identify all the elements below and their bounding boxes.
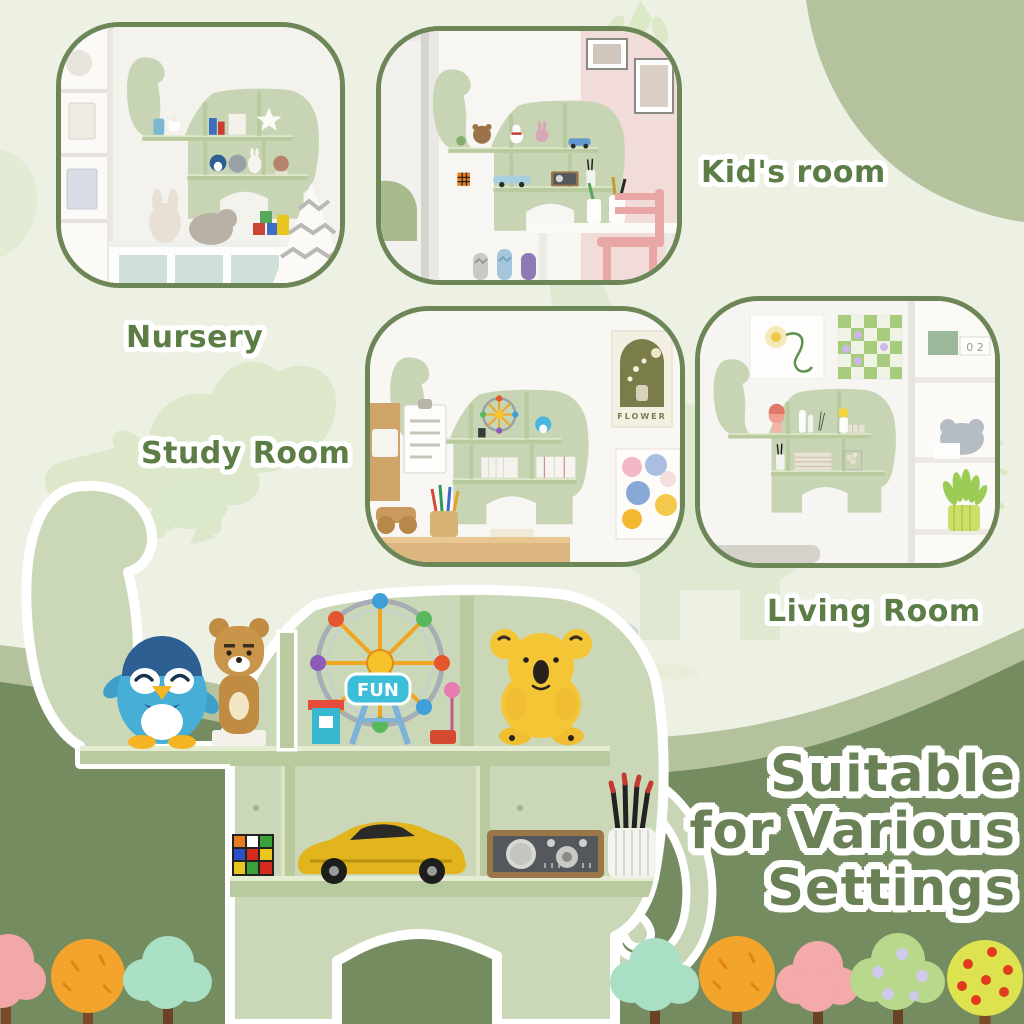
photo-card-kids-room [376, 26, 682, 285]
radio [487, 830, 604, 878]
rolled-mats [473, 249, 536, 280]
nursery-scene [61, 27, 340, 283]
rubiks-cube-toy [232, 834, 274, 876]
checkered-print [838, 315, 902, 379]
headline-line-2: for Various [636, 803, 1016, 860]
clipboard [404, 399, 446, 473]
tree-green-dotted [850, 933, 945, 1024]
headline-line-3: Settings [636, 860, 1016, 917]
wall-shelf-unit [61, 27, 113, 283]
kids-room-scene [381, 31, 677, 280]
toy-block [253, 223, 265, 235]
tree-mint-2 [610, 938, 699, 1024]
shelving-unit: 0 2 [908, 301, 995, 563]
label-study-room: Study Room [141, 436, 350, 471]
label-living-room: Living Room [767, 594, 981, 629]
label-nursery: Nursery [126, 320, 263, 355]
poster-title-text: FLOWER [617, 412, 667, 421]
tree-mint [123, 936, 212, 1024]
photo-card-living-room: 0 2 [695, 296, 1000, 568]
watermark-blob-topleft [0, 148, 37, 261]
trees-row [0, 928, 1024, 1024]
tree-pink-2 [776, 941, 859, 1024]
living-room-scene: 0 2 [700, 301, 995, 563]
headline-line-1: Suitable [636, 746, 1016, 803]
door-frame [381, 31, 439, 280]
headline: Suitable for Various Settings [636, 746, 1016, 917]
daisy-print [750, 315, 824, 379]
green-box [928, 331, 958, 355]
label-kids-room: Kid's room [701, 155, 886, 190]
page-root: FLOWER [0, 0, 1024, 1024]
photo-card-nursery [56, 22, 345, 288]
tree-red-dotted [947, 940, 1023, 1024]
tree-orange-2 [699, 936, 775, 1024]
tree-pink-left [0, 934, 46, 1024]
flower-poster: FLOWER [612, 331, 672, 427]
svg-text:0 2: 0 2 [966, 341, 984, 354]
fun-sign-text: FUN [357, 680, 399, 701]
tree-orange [51, 939, 125, 1024]
shelf-divider [280, 633, 294, 748]
